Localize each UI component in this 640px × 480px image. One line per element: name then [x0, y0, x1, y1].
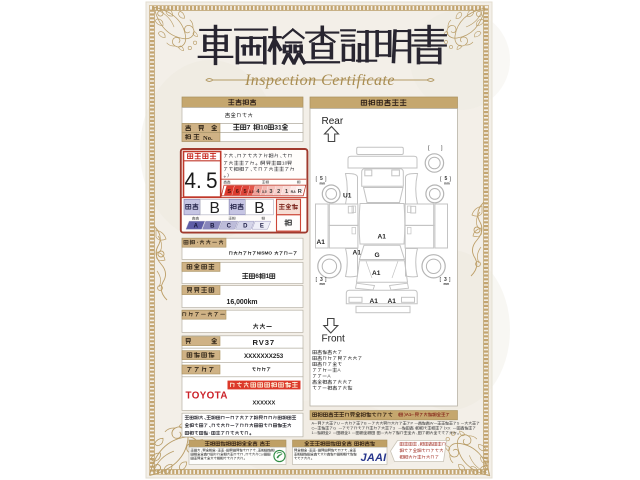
svg-text:mm: mm: [320, 282, 326, 286]
svg-text:Front: Front: [322, 334, 346, 345]
svg-text:B: B: [364, 421, 367, 426]
svg-text:3: 3: [348, 430, 350, 435]
svg-text:No.: No.: [203, 135, 213, 142]
svg-text:1: 1: [266, 273, 270, 280]
svg-text:P: P: [411, 421, 414, 426]
svg-text:JAAI: JAAI: [361, 452, 388, 464]
svg-text:4. 5: 4. 5: [185, 168, 218, 193]
svg-text:5: 5: [244, 189, 247, 195]
svg-text:E: E: [260, 223, 264, 229]
svg-text:16,000km: 16,000km: [227, 299, 258, 306]
svg-text:10: 10: [282, 161, 288, 167]
svg-text:B: B: [210, 223, 215, 229]
svg-text:RV37: RV37: [253, 338, 275, 347]
svg-text:mm: mm: [320, 181, 326, 185]
svg-text:C: C: [227, 223, 232, 229]
svg-text:W: W: [430, 421, 434, 426]
svg-text:3: 3: [393, 425, 395, 430]
svg-text:A1: A1: [370, 298, 379, 305]
svg-text:NISMO: NISMO: [257, 251, 273, 256]
svg-text:XXXXXXX253: XXXXXXX253: [244, 353, 284, 360]
svg-text:D: D: [243, 223, 248, 229]
svg-text:A1: A1: [388, 298, 397, 305]
svg-text:S: S: [227, 189, 231, 195]
svg-text:XXXXXX: XXXXXX: [253, 400, 276, 406]
svg-text:1: 1: [285, 189, 288, 195]
svg-text:U: U: [337, 421, 340, 426]
svg-text:10: 10: [260, 124, 268, 131]
svg-text:A1: A1: [317, 239, 326, 246]
svg-text:B: B: [254, 200, 264, 217]
svg-text:S: S: [457, 421, 460, 426]
svg-text:A1: A1: [353, 250, 362, 257]
svg-text:R: R: [298, 189, 302, 195]
svg-text:Rear: Rear: [322, 116, 344, 127]
svg-text:mm: mm: [444, 181, 450, 185]
svg-text:A1: A1: [406, 412, 412, 417]
svg-text:1: 1: [312, 430, 314, 435]
svg-text:mm: mm: [444, 282, 450, 286]
svg-text:2: 2: [329, 430, 331, 435]
svg-text:TOYOTA: TOYOTA: [186, 391, 228, 402]
svg-text:3: 3: [269, 189, 272, 195]
svg-text:G: G: [333, 425, 336, 430]
svg-text:G: G: [375, 252, 380, 259]
svg-text:A1: A1: [378, 234, 387, 241]
svg-text:4.5: 4.5: [249, 190, 254, 194]
svg-text:A: A: [194, 223, 199, 229]
svg-text:31: 31: [274, 124, 282, 131]
svg-text:A1: A1: [372, 270, 381, 277]
svg-text:6: 6: [236, 189, 239, 195]
svg-text:Inspection Certificate: Inspection Certificate: [244, 72, 395, 89]
svg-text:6: 6: [255, 273, 259, 280]
svg-text:7: 7: [247, 124, 251, 131]
svg-text:B: B: [210, 200, 220, 217]
svg-text:Car: Car: [259, 452, 265, 456]
svg-text:3.5: 3.5: [262, 190, 267, 194]
svg-text:2: 2: [277, 189, 280, 195]
svg-text:U1: U1: [343, 193, 352, 200]
svg-text:XX: XX: [445, 425, 451, 430]
